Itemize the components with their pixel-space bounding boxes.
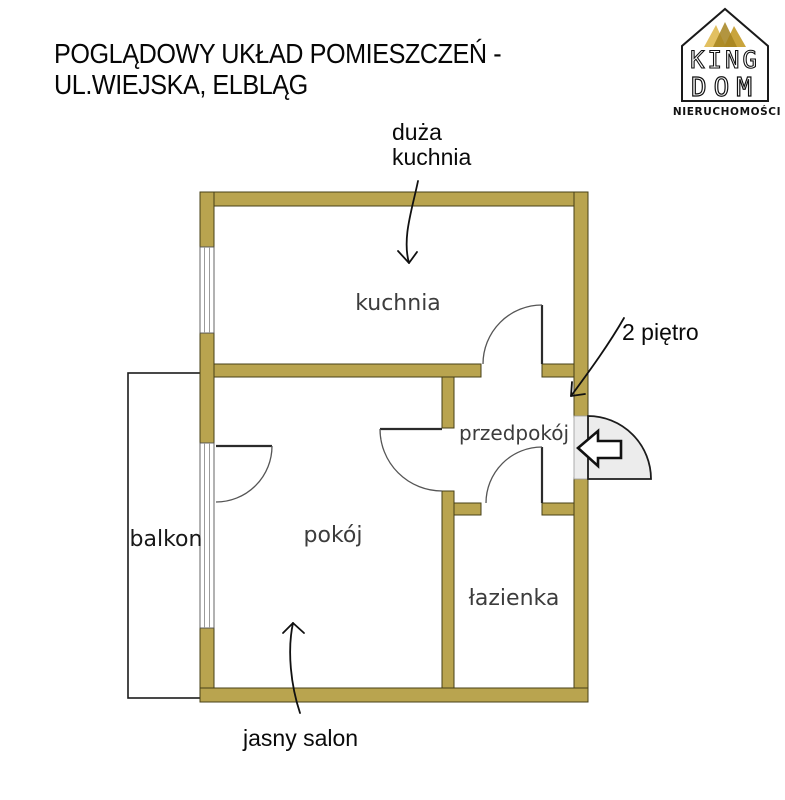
wall-right-segment-2 [574, 478, 588, 702]
room-label-bathroom: łazienka [469, 586, 560, 612]
wall-kitchen-divider-left [214, 364, 481, 377]
room-label-hallway: przedpokój [459, 420, 569, 446]
wall-bathroom-divider-right [542, 503, 574, 515]
kitchen-note: duża kuchnia [392, 120, 471, 169]
room-label-living-room: pokój [304, 523, 363, 549]
salon-note: jasny salon [243, 726, 358, 751]
kitchen-note-line2: kuchnia [392, 145, 471, 170]
wall-bottom [200, 688, 588, 702]
interior-doors [216, 305, 542, 503]
wall-left-segment-2 [200, 333, 214, 443]
wall-room-divider-bottom [442, 491, 454, 688]
kitchen-door-swing [483, 305, 542, 364]
wall-room-divider-top [442, 377, 454, 428]
balcony-door-swing [216, 446, 272, 502]
wall-kitchen-divider-right [542, 364, 574, 377]
bathroom-door-swing [486, 447, 542, 503]
wall-left-segment-1 [200, 192, 214, 247]
room-label-balcony: balkon [130, 527, 203, 553]
kitchen-window [200, 247, 214, 333]
salon-note-arrowhead-icon [283, 623, 304, 633]
wall-top [200, 192, 588, 206]
wall-bathroom-divider-left [454, 503, 481, 515]
kitchen-note-line1: duża [392, 120, 471, 145]
floor-plan-page: POGLĄDOWY UKŁAD POMIESZCZEŃ - UL.WIEJSKA… [0, 0, 785, 800]
room-label-kitchen: kuchnia [355, 291, 441, 317]
living-room-door-swing [380, 429, 442, 491]
floor-note: 2 piętro [622, 320, 699, 345]
